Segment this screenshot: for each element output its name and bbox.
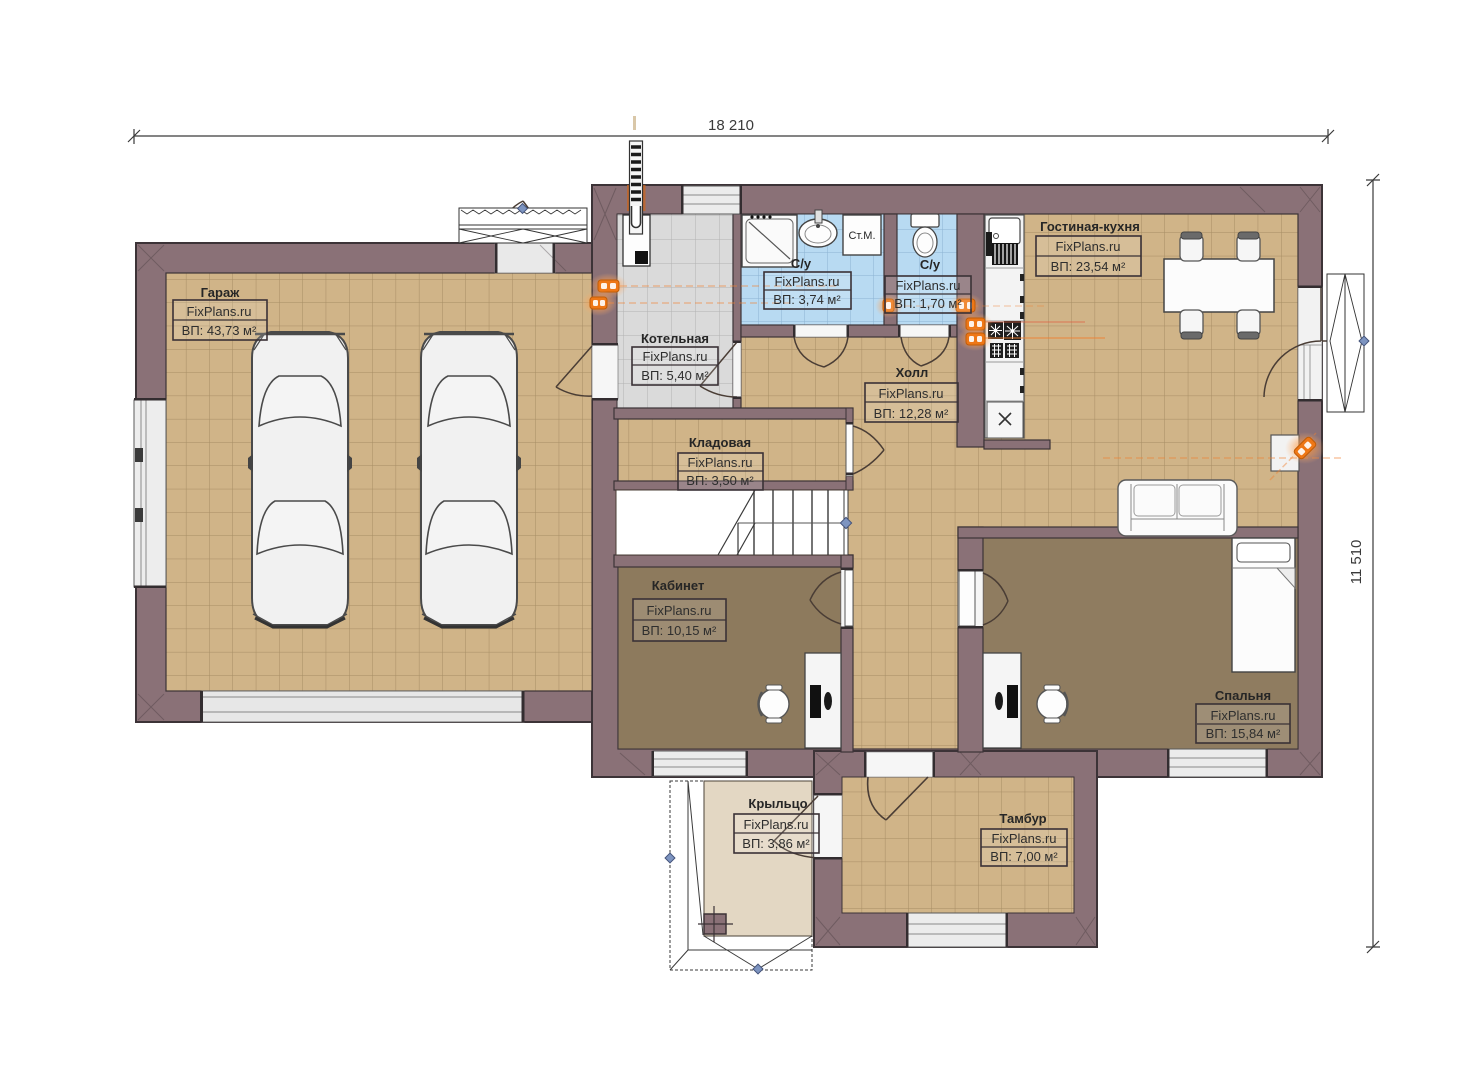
svg-text:FixPlans.ru: FixPlans.ru [646, 603, 711, 618]
svg-text:ВП: 3,86 м²: ВП: 3,86 м² [742, 836, 810, 851]
svg-text:ВП: 23,54 м²: ВП: 23,54 м² [1051, 259, 1126, 274]
svg-text:18 210: 18 210 [708, 117, 754, 134]
svg-text:Гостиная-кухня: Гостиная-кухня [1040, 219, 1140, 234]
svg-text:FixPlans.ru: FixPlans.ru [743, 817, 808, 832]
svg-text:Котельная: Котельная [641, 331, 709, 346]
svg-text:ВП: 10,15 м²: ВП: 10,15 м² [642, 623, 717, 638]
svg-text:FixPlans.ru: FixPlans.ru [878, 386, 943, 401]
svg-text:Ст.М.: Ст.М. [848, 230, 875, 242]
svg-text:Холл: Холл [896, 365, 929, 380]
svg-text:FixPlans.ru: FixPlans.ru [186, 304, 251, 319]
svg-text:С/у: С/у [791, 256, 812, 271]
svg-text:FixPlans.ru: FixPlans.ru [895, 278, 960, 293]
svg-text:ВП: 5,40 м²: ВП: 5,40 м² [641, 368, 709, 383]
svg-text:Спальня: Спальня [1215, 688, 1271, 703]
svg-text:FixPlans.ru: FixPlans.ru [774, 274, 839, 289]
svg-text:ВП: 43,73 м²: ВП: 43,73 м² [182, 323, 257, 338]
svg-text:ВП: 12,28 м²: ВП: 12,28 м² [874, 406, 949, 421]
svg-text:С/у: С/у [920, 257, 941, 272]
svg-text:Кладовая: Кладовая [689, 435, 751, 450]
svg-text:ВП: 3,50 м²: ВП: 3,50 м² [686, 473, 754, 488]
svg-text:FixPlans.ru: FixPlans.ru [687, 455, 752, 470]
svg-text:11 510: 11 510 [1348, 540, 1365, 585]
svg-text:ВП: 3,74 м²: ВП: 3,74 м² [773, 292, 841, 307]
svg-text:FixPlans.ru: FixPlans.ru [642, 349, 707, 364]
svg-text:FixPlans.ru: FixPlans.ru [1055, 239, 1120, 254]
svg-text:ВП: 15,84 м²: ВП: 15,84 м² [1206, 726, 1281, 741]
svg-text:FixPlans.ru: FixPlans.ru [1210, 708, 1275, 723]
svg-text:ВП: 7,00 м²: ВП: 7,00 м² [990, 849, 1058, 864]
svg-text:Тамбур: Тамбур [999, 811, 1046, 826]
svg-text:Кабинет: Кабинет [652, 578, 705, 593]
svg-text:Гараж: Гараж [201, 285, 241, 300]
svg-text:ВП: 1,70 м²: ВП: 1,70 м² [894, 296, 962, 311]
svg-text:FixPlans.ru: FixPlans.ru [991, 831, 1056, 846]
svg-text:Крыльцо: Крыльцо [748, 796, 807, 811]
